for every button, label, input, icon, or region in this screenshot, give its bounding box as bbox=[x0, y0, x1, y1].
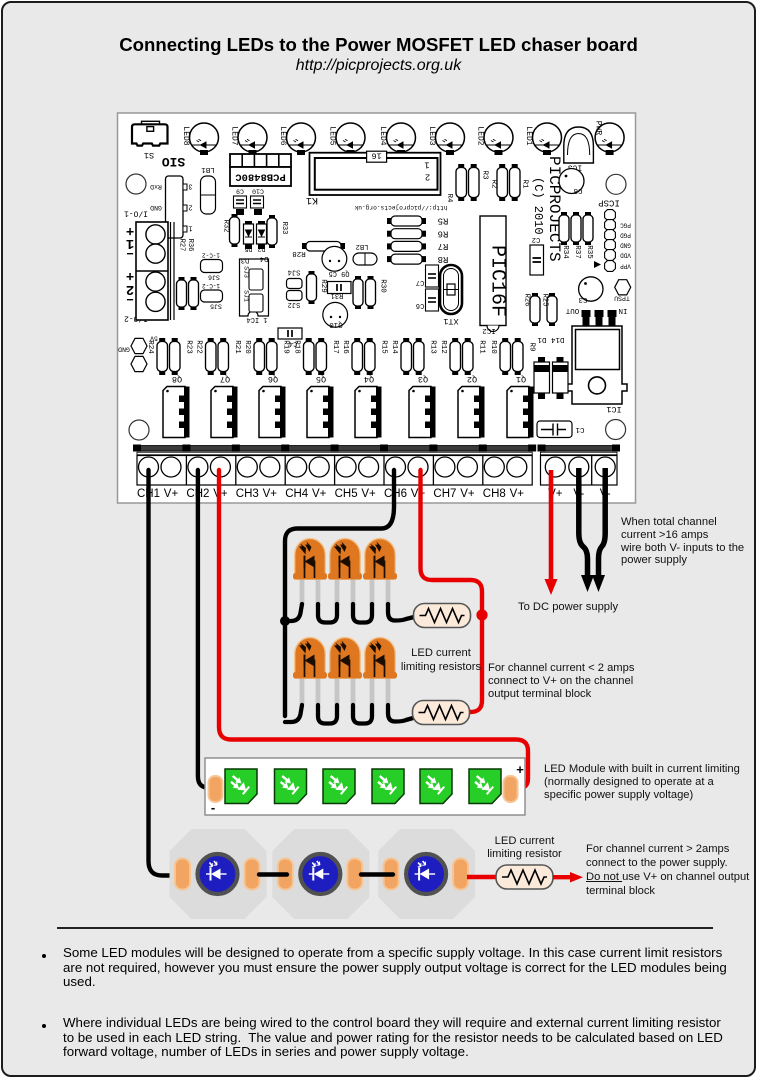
svg-text:Q9 C5: Q9 C5 bbox=[328, 269, 349, 277]
svg-text:V+: V+ bbox=[312, 488, 327, 500]
svg-text:R4: R4 bbox=[445, 193, 453, 203]
svg-text:R35: R35 bbox=[585, 245, 593, 259]
svg-text:C1: C1 bbox=[575, 425, 585, 433]
svg-text:1: 1 bbox=[188, 224, 192, 232]
svg-text:LED2: LED2 bbox=[476, 126, 485, 145]
svg-text:IN: IN bbox=[618, 306, 627, 314]
svg-text:C8: C8 bbox=[573, 186, 582, 194]
svg-text:CH3: CH3 bbox=[236, 488, 259, 500]
svg-text:R23: R23 bbox=[185, 340, 193, 354]
svg-text:R14: R14 bbox=[390, 340, 398, 354]
svg-text:V+: V+ bbox=[361, 488, 376, 500]
svg-text:D14 D1: D14 D1 bbox=[537, 335, 565, 343]
svg-text:3: 3 bbox=[188, 182, 192, 190]
svg-text:R19: R19 bbox=[282, 340, 290, 354]
svg-text:R32: R32 bbox=[222, 220, 230, 233]
svg-text:GND: GND bbox=[150, 204, 162, 211]
svg-text:–: – bbox=[126, 245, 134, 261]
svg-text:SJ2: SJ2 bbox=[288, 300, 301, 308]
svg-text:C6: C6 bbox=[416, 301, 424, 309]
svg-text:LED7: LED7 bbox=[230, 126, 239, 145]
svg-text:1-C-2: 1-C-2 bbox=[202, 251, 220, 258]
svg-text:CH4: CH4 bbox=[285, 488, 309, 500]
svg-text:GND: GND bbox=[620, 241, 631, 248]
svg-text:PICPROJECTS: PICPROJECTS bbox=[545, 156, 563, 262]
svg-text:GND: GND bbox=[118, 345, 130, 352]
svg-text:2: 2 bbox=[425, 172, 430, 182]
svg-text:C3: C3 bbox=[578, 295, 588, 303]
svg-text:D4: D4 bbox=[260, 254, 268, 262]
svg-text:16: 16 bbox=[371, 151, 381, 161]
svg-text:R21: R21 bbox=[233, 340, 241, 354]
svg-text:C2: C2 bbox=[532, 235, 540, 243]
svg-text:R6: R6 bbox=[438, 228, 449, 238]
svg-text:LED3: LED3 bbox=[427, 126, 436, 145]
svg-text:SJ6: SJ6 bbox=[208, 273, 220, 280]
svg-text:R11: R11 bbox=[478, 340, 486, 354]
svg-text:D3: D3 bbox=[241, 256, 249, 264]
svg-text:Q5: Q5 bbox=[316, 374, 326, 384]
svg-text:R12: R12 bbox=[439, 340, 447, 354]
svg-text:R29: R29 bbox=[319, 279, 327, 293]
svg-text:Q6: Q6 bbox=[268, 374, 278, 384]
svg-text:R37: R37 bbox=[573, 245, 581, 259]
svg-text:R24: R24 bbox=[146, 340, 154, 354]
svg-text:R26: R26 bbox=[523, 294, 531, 307]
svg-text:SJ1: SJ1 bbox=[243, 290, 250, 302]
svg-text:2: 2 bbox=[188, 203, 192, 211]
svg-text:http://picprojects.org.uk: http://picprojects.org.uk bbox=[354, 204, 447, 211]
svg-text:V+: V+ bbox=[263, 488, 278, 500]
svg-text:1: 1 bbox=[424, 160, 429, 170]
svg-text:R2: R2 bbox=[490, 179, 498, 188]
svg-text:R7: R7 bbox=[438, 241, 449, 251]
svg-text:OUT: OUT bbox=[565, 306, 579, 314]
svg-text:PGC: PGC bbox=[620, 221, 631, 228]
svg-text:LB1: LB1 bbox=[201, 165, 215, 173]
svg-text:1-C-2: 1-C-2 bbox=[202, 282, 220, 289]
svg-text:SIO: SIO bbox=[162, 154, 186, 169]
svg-text:R28: R28 bbox=[292, 249, 306, 257]
svg-text:+: + bbox=[516, 762, 524, 777]
svg-text:D2: D2 bbox=[258, 245, 266, 252]
svg-text:R17: R17 bbox=[331, 340, 339, 354]
svg-text:D5: D5 bbox=[245, 245, 253, 252]
svg-text:V+: V+ bbox=[164, 488, 179, 500]
svg-text:R22: R22 bbox=[195, 340, 203, 354]
svg-text:RxD: RxD bbox=[150, 183, 162, 190]
svg-text:C10: C10 bbox=[252, 187, 264, 194]
svg-text:R1: R1 bbox=[521, 179, 529, 189]
svg-text:C9: C9 bbox=[236, 187, 244, 194]
svg-text:PGD: PGD bbox=[620, 231, 631, 238]
svg-text:SJ5: SJ5 bbox=[210, 302, 222, 309]
svg-text:Q8: Q8 bbox=[172, 374, 182, 384]
svg-text:PWR: PWR bbox=[594, 121, 603, 136]
svg-text:PCB8480C: PCB8480C bbox=[235, 171, 286, 183]
svg-text:LED5: LED5 bbox=[328, 126, 337, 145]
svg-text:IC1: IC1 bbox=[606, 404, 621, 414]
svg-text:R5: R5 bbox=[438, 216, 449, 226]
svg-text:XT1: XT1 bbox=[443, 316, 458, 326]
svg-text:SJ3: SJ3 bbox=[243, 266, 250, 278]
svg-text:R10: R10 bbox=[489, 340, 497, 354]
svg-text:VDD: VDD bbox=[620, 251, 631, 258]
svg-text:R34: R34 bbox=[561, 245, 569, 259]
svg-text:R20: R20 bbox=[243, 340, 251, 354]
svg-text:R31: R31 bbox=[331, 291, 344, 299]
svg-text:(C) 2010: (C) 2010 bbox=[531, 177, 545, 235]
svg-text:R30: R30 bbox=[379, 279, 387, 293]
svg-text:Q7: Q7 bbox=[220, 374, 230, 384]
svg-text:VPP: VPP bbox=[620, 262, 631, 269]
svg-text:K1: K1 bbox=[306, 194, 318, 205]
svg-text:–: – bbox=[126, 291, 134, 307]
svg-text:Q10: Q10 bbox=[329, 320, 343, 328]
svg-text:LB2: LB2 bbox=[356, 242, 369, 250]
svg-text:LED1: LED1 bbox=[524, 126, 533, 145]
svg-text:R3: R3 bbox=[481, 170, 489, 180]
svg-text:-: - bbox=[211, 800, 215, 815]
svg-text:C7: C7 bbox=[416, 278, 424, 286]
svg-text:Q3: Q3 bbox=[418, 374, 428, 384]
svg-text:R18: R18 bbox=[293, 340, 301, 354]
svg-text:R15: R15 bbox=[380, 340, 388, 354]
svg-text:V+: V+ bbox=[510, 488, 525, 500]
svg-text:Q2: Q2 bbox=[467, 374, 477, 384]
svg-text:+: + bbox=[126, 267, 134, 283]
svg-text:R16: R16 bbox=[341, 340, 349, 354]
svg-text:R9: R9 bbox=[528, 342, 536, 351]
svg-text:V+: V+ bbox=[460, 488, 475, 500]
svg-text:Q4: Q4 bbox=[364, 374, 374, 384]
svg-text:R13: R13 bbox=[429, 340, 437, 354]
svg-text:R27: R27 bbox=[178, 239, 186, 252]
svg-text:PIC16F: PIC16F bbox=[486, 245, 509, 317]
svg-text:1 IC4: 1 IC4 bbox=[246, 315, 267, 323]
svg-text:Q1: Q1 bbox=[516, 374, 526, 384]
svg-text:R8: R8 bbox=[438, 254, 449, 264]
svg-text:SJ4: SJ4 bbox=[288, 268, 301, 276]
svg-text:IC2: IC2 bbox=[482, 326, 496, 334]
svg-text:I/O-1: I/O-1 bbox=[124, 208, 148, 217]
svg-text:CH8: CH8 bbox=[483, 488, 506, 500]
svg-text:LED4: LED4 bbox=[378, 126, 387, 145]
svg-text:CH5: CH5 bbox=[335, 488, 358, 500]
svg-text:TPSU: TPSU bbox=[614, 294, 630, 301]
svg-text:CH7: CH7 bbox=[433, 488, 456, 500]
svg-text:R33: R33 bbox=[280, 222, 288, 235]
svg-text:ICSP: ICSP bbox=[598, 198, 620, 208]
svg-text:R25: R25 bbox=[541, 294, 549, 307]
svg-text:R36: R36 bbox=[186, 239, 194, 252]
svg-text:LED8: LED8 bbox=[181, 126, 190, 145]
svg-text:S1: S1 bbox=[144, 150, 154, 160]
svg-text:V+: V+ bbox=[411, 488, 426, 500]
svg-text:LED6: LED6 bbox=[278, 126, 287, 145]
